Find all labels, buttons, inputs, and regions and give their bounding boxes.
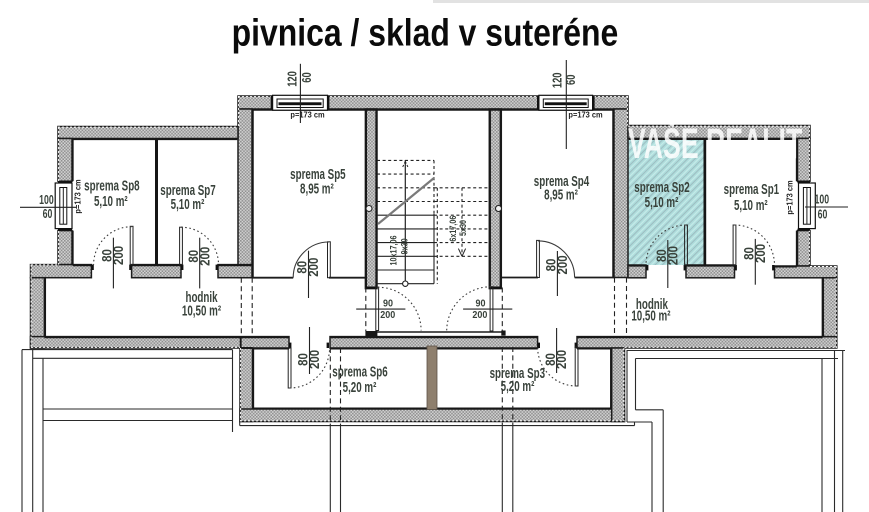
svg-text:60: 60: [565, 75, 579, 85]
svg-text:5,10 m²: 5,10 m²: [94, 193, 128, 209]
svg-text:sprema Sp1: sprema Sp1: [724, 181, 780, 197]
svg-text:200: 200: [111, 246, 126, 265]
svg-text:120: 120: [551, 73, 565, 89]
svg-text:sprema Sp8: sprema Sp8: [84, 178, 140, 194]
svg-text:p=173 cm: p=173 cm: [290, 110, 324, 119]
svg-text:p=173 cm: p=173 cm: [785, 180, 794, 214]
svg-text:60: 60: [301, 72, 315, 82]
svg-text:60: 60: [43, 208, 53, 222]
svg-text:200: 200: [472, 310, 487, 322]
svg-text:p=173 cm: p=173 cm: [73, 179, 82, 213]
svg-text:200: 200: [306, 258, 321, 277]
svg-text:10x17,06: 10x17,06: [388, 235, 399, 265]
svg-text:200: 200: [307, 350, 322, 369]
svg-text:200: 200: [666, 246, 681, 265]
svg-text:90: 90: [383, 298, 393, 310]
svg-text:5,20 m²: 5,20 m²: [343, 379, 377, 395]
svg-text:200: 200: [380, 310, 395, 322]
svg-text:VAŠE REALIT: VAŠE REALIT: [628, 120, 802, 168]
svg-text:200: 200: [554, 350, 569, 369]
svg-text:5,20 m²: 5,20 m²: [501, 378, 535, 394]
svg-text:200: 200: [197, 247, 212, 266]
svg-text:9x30: 9x30: [398, 238, 409, 254]
svg-text:5,10 m²: 5,10 m²: [734, 197, 768, 213]
svg-text:200: 200: [555, 255, 570, 274]
svg-text:8,95 m²: 8,95 m²: [300, 181, 334, 197]
svg-text:200: 200: [753, 244, 768, 263]
svg-text:10,50 m²: 10,50 m²: [631, 307, 670, 323]
svg-text:5,10 m²: 5,10 m²: [645, 194, 679, 210]
svg-text:pivnica / sklad v suteréne: pivnica / sklad v suteréne: [232, 12, 619, 54]
svg-text:100: 100: [39, 193, 54, 207]
svg-text:8,95 m²: 8,95 m²: [544, 186, 578, 202]
svg-text:60: 60: [818, 208, 828, 222]
svg-text:120: 120: [286, 71, 300, 87]
svg-text:p=173 cm: p=173 cm: [568, 110, 602, 119]
svg-text:90: 90: [475, 298, 485, 310]
svg-text:sprema Sp2: sprema Sp2: [634, 179, 690, 195]
svg-text:5x30: 5x30: [457, 220, 468, 236]
svg-text:sprema Sp6: sprema Sp6: [332, 364, 388, 380]
svg-text:100: 100: [815, 193, 830, 207]
svg-text:5,10 m²: 5,10 m²: [171, 196, 205, 212]
svg-text:10,50 m²: 10,50 m²: [182, 303, 221, 319]
